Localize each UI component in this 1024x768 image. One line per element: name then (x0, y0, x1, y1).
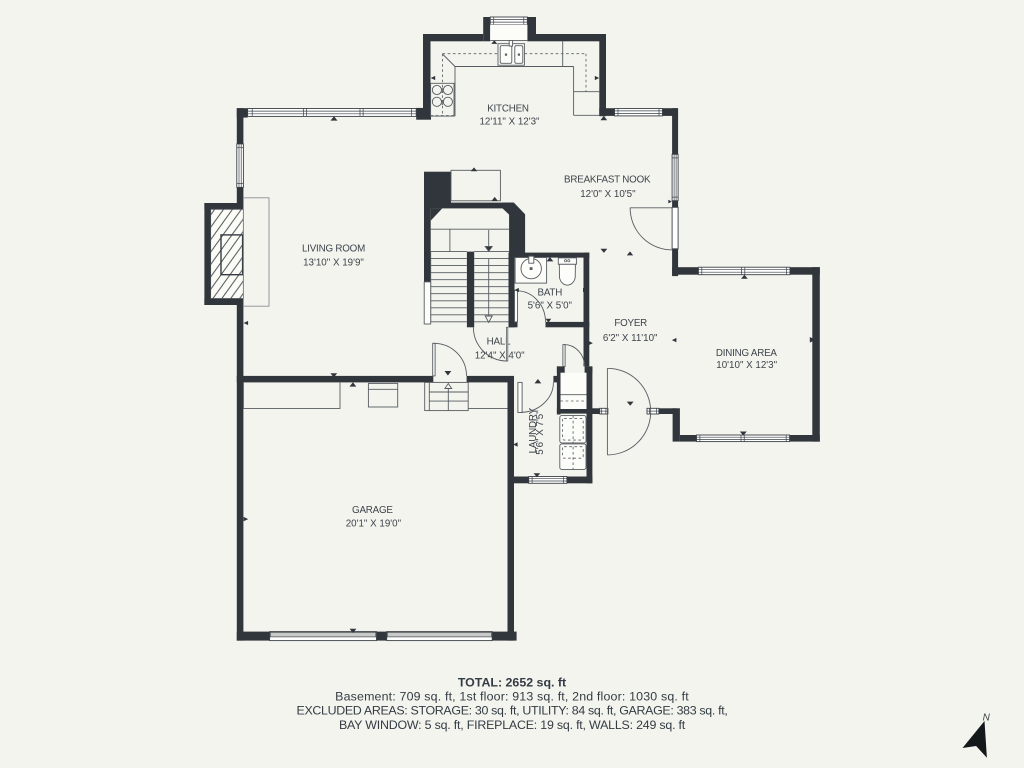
svg-text:BATH: BATH (537, 287, 562, 298)
svg-text:EXCLUDED AREAS: STORAGE: 30 sq: EXCLUDED AREAS: STORAGE: 30 sq. ft, UTIL… (297, 704, 728, 718)
svg-text:12'11" X 12'3": 12'11" X 12'3" (479, 117, 540, 128)
svg-text:BAY WINDOW: 5 sq. ft, FIREPLAC: BAY WINDOW: 5 sq. ft, FIREPLACE: 19 sq. … (339, 718, 686, 732)
svg-text:12'4" X 4'0": 12'4" X 4'0" (475, 350, 525, 361)
svg-text:6'2" X 11'10": 6'2" X 11'10" (603, 333, 658, 344)
svg-text:TOTAL: 2652 sq. ft: TOTAL: 2652 sq. ft (458, 675, 566, 689)
svg-text:FOYER: FOYER (614, 318, 647, 329)
svg-text:BREAKFAST NOOK: BREAKFAST NOOK (564, 175, 651, 186)
svg-text:DINING AREA: DINING AREA (716, 348, 778, 359)
svg-text:10'10" X 12'3": 10'10" X 12'3" (716, 360, 777, 371)
svg-text:KITCHEN: KITCHEN (487, 104, 529, 115)
svg-text:12'0" X 10'5": 12'0" X 10'5" (580, 189, 636, 200)
svg-text:5'6" X 7'5": 5'6" X 7'5" (535, 410, 546, 455)
svg-text:13'10" X 19'9": 13'10" X 19'9" (303, 258, 364, 269)
svg-text:Basement: 709 sq. ft, 1st floo: Basement: 709 sq. ft, 1st floor: 913 sq.… (335, 689, 689, 703)
svg-text:LIVING ROOM: LIVING ROOM (302, 244, 365, 255)
svg-text:GARAGE: GARAGE (352, 505, 393, 516)
svg-text:20'1" X 19'0": 20'1" X 19'0" (346, 519, 402, 530)
svg-text:N: N (983, 713, 991, 724)
svg-text:5'6" X 5'0": 5'6" X 5'0" (528, 301, 573, 312)
